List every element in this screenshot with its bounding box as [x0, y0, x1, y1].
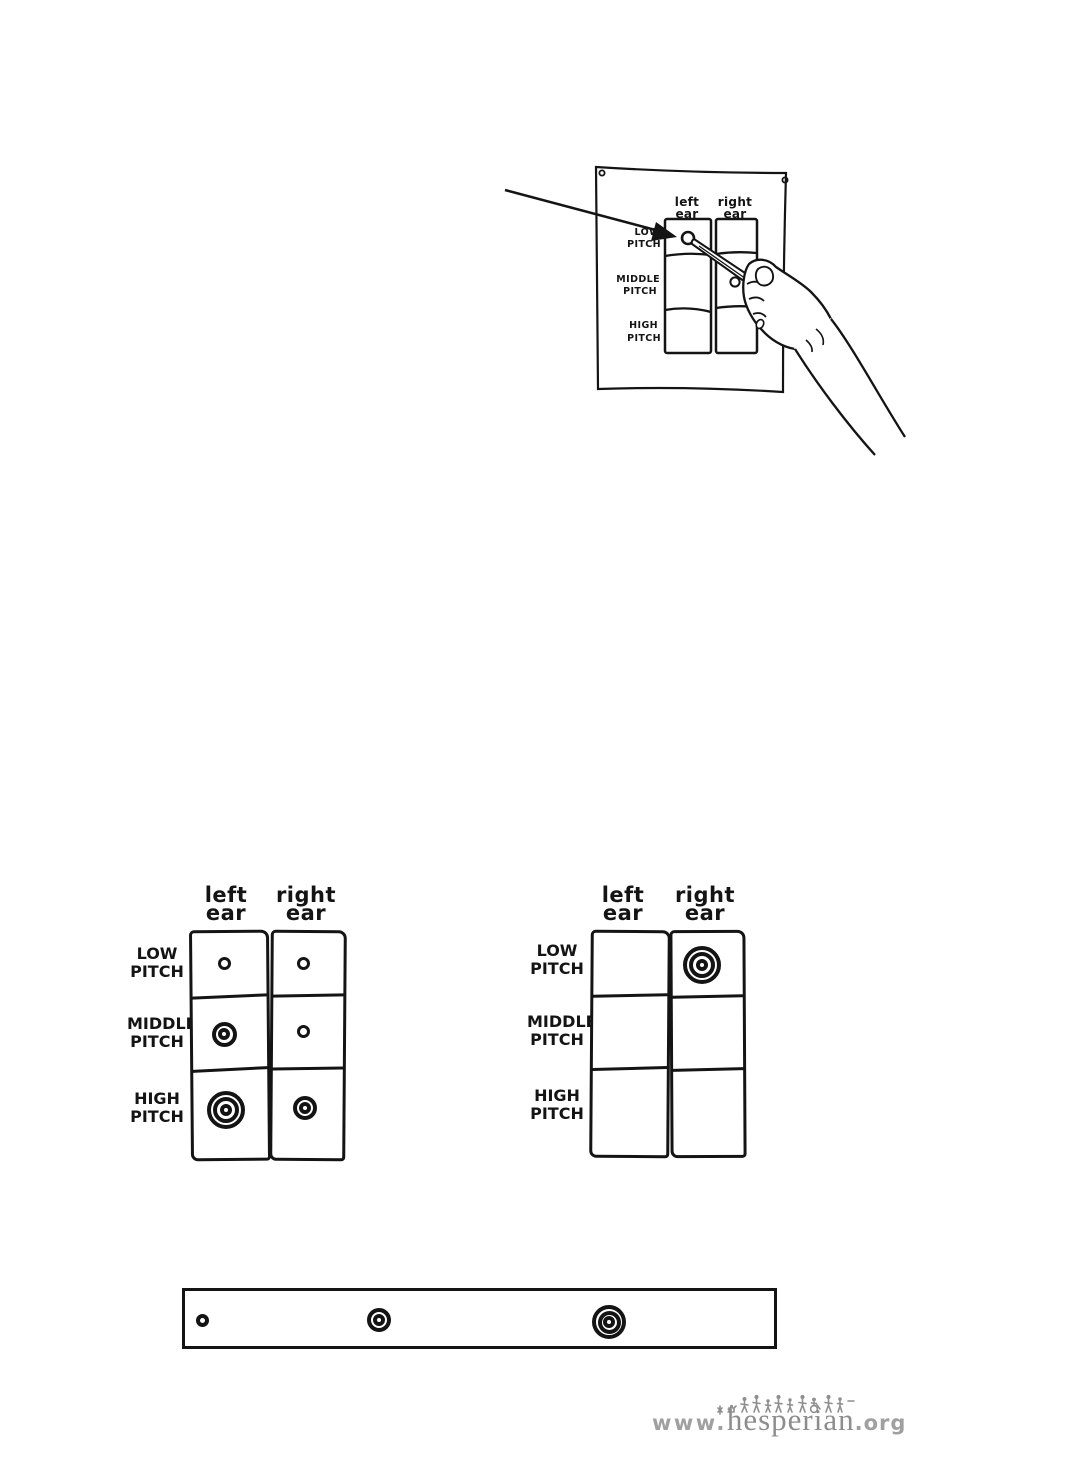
legend-symbols-box	[182, 1288, 777, 1349]
row-divider	[671, 994, 745, 999]
row-label-high-pitch: HIGH PITCH	[127, 1090, 187, 1126]
pinned-row-label-low-pitch: PITCH	[627, 239, 661, 250]
pinned-row-label-high-pitch: HIGH	[629, 320, 658, 331]
pinned-row-label-middle-pitch: PITCH	[623, 286, 657, 297]
col-header-right-ear: right ear	[665, 886, 745, 922]
row-divider	[271, 993, 345, 997]
row-divider	[191, 1066, 269, 1073]
col-header-right-ear: right ear	[266, 886, 346, 922]
document-page: left ear right ear LOW PITCH MIDDLE PITC…	[0, 0, 1088, 1463]
row-divider	[271, 1066, 345, 1070]
col-header-left-ear: left ear	[583, 886, 663, 922]
col-header-line: ear	[583, 904, 663, 922]
pinned-row-label-middle-pitch: MIDDLE	[616, 274, 660, 285]
logo-org-suffix: .org	[855, 1411, 907, 1435]
row-divider	[591, 993, 669, 998]
row-label-low-pitch: LOW PITCH	[127, 945, 187, 981]
pinned-col-header-left-ear: ear	[675, 207, 698, 221]
forearm-fill	[794, 318, 905, 456]
row-label-middle-pitch: MIDDLE PITCH	[127, 1015, 187, 1051]
audiogram-example-marked: left ear right ear LOW PITCH MIDDLE PITC…	[130, 880, 400, 1180]
logo-word-hesperian: hesperian	[727, 1402, 855, 1438]
row-label-middle-pitch: MIDDLE PITCH	[527, 1013, 587, 1049]
hesperian-url: www.hesperian.org	[652, 1402, 906, 1438]
pinned-row-label-high-pitch: PITCH	[627, 333, 661, 344]
audiogram-example-single-mark: left ear right ear LOW PITCH MIDDLE PITC…	[530, 880, 800, 1180]
logo-www-prefix: www.	[652, 1411, 727, 1435]
thumb	[756, 267, 773, 286]
col-header-line: ear	[186, 904, 266, 922]
row-label-low-pitch: LOW PITCH	[527, 942, 587, 978]
pen-cap-ring-icon	[730, 277, 739, 286]
pinned-chart-illustration: left ear right ear LOW PITCH MIDDLE PITC…	[495, 158, 915, 473]
col-header-left-ear: left ear	[186, 886, 266, 922]
pinned-col-header-right-ear: ear	[723, 207, 746, 221]
row-label-high-pitch: HIGH PITCH	[527, 1087, 587, 1123]
row-divider	[191, 993, 269, 1000]
row-divider	[591, 1066, 669, 1071]
row-divider	[671, 1067, 745, 1072]
hesperian-logo: www.hesperian.org	[652, 1392, 892, 1444]
left-ear-column	[589, 930, 671, 1159]
